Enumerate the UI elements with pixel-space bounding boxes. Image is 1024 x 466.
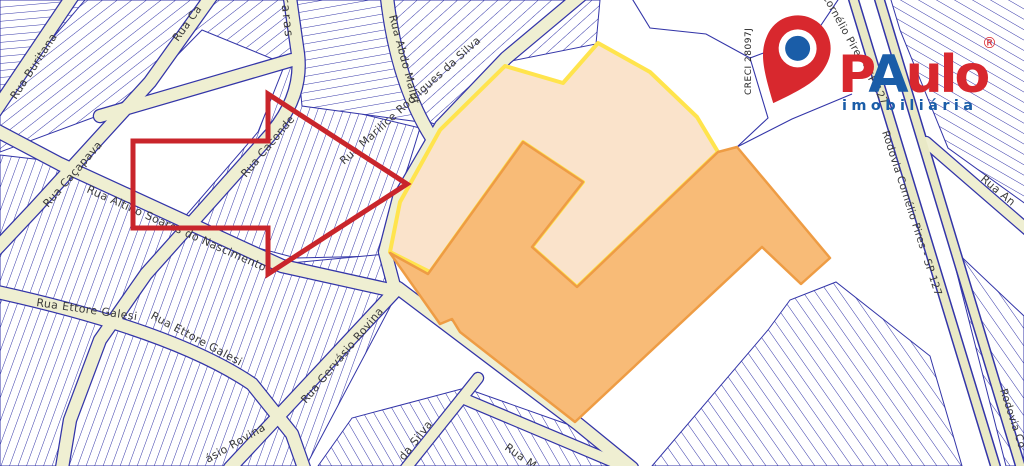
registered-mark: ® <box>982 34 997 52</box>
brand-wordmark: PAulo <box>838 45 988 105</box>
brand-subtitle: imobiliária <box>842 98 977 114</box>
map-canvas: Rua Buritana Rua Ca Rua Caçapava Rua Cac… <box>0 0 1024 466</box>
creci-number: CRECI 28097J <box>744 28 754 95</box>
map-screenshot: Rua Buritana Rua Ca Rua Caçapava Rua Cac… <box>0 0 1024 466</box>
